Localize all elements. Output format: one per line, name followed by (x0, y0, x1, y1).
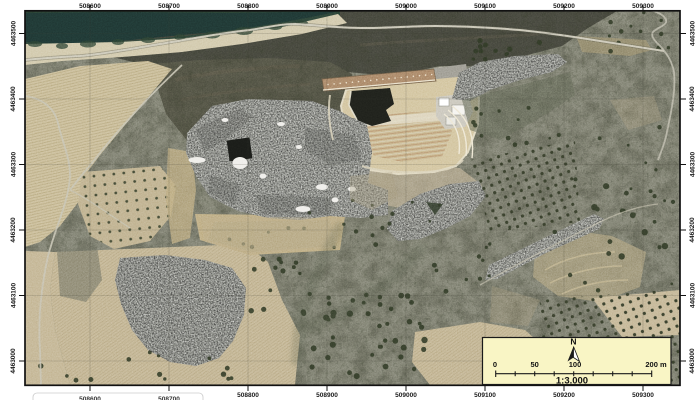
svg-text:508900: 508900 (316, 392, 338, 399)
svg-text:508700: 508700 (158, 3, 180, 10)
svg-text:4463400: 4463400 (689, 86, 696, 112)
svg-text:509000: 509000 (395, 392, 417, 399)
svg-text:50: 50 (531, 360, 539, 369)
svg-text:4463400: 4463400 (10, 86, 17, 112)
svg-text:508700: 508700 (158, 396, 180, 400)
svg-text:509100: 509100 (474, 392, 496, 399)
svg-text:200 m: 200 m (645, 360, 667, 369)
svg-text:509000: 509000 (395, 3, 417, 10)
svg-text:4463200: 4463200 (10, 217, 17, 243)
svg-text:4463500: 4463500 (11, 20, 18, 46)
svg-text:4463000: 4463000 (10, 348, 17, 374)
svg-text:4463300: 4463300 (690, 151, 697, 177)
svg-text:509100: 509100 (474, 3, 496, 10)
svg-text:508800: 508800 (237, 392, 259, 399)
svg-text:508600: 508600 (79, 3, 101, 10)
svg-text:509200: 509200 (553, 3, 575, 10)
svg-text:1:3.000: 1:3.000 (556, 376, 588, 387)
svg-text:509300: 509300 (632, 392, 654, 399)
svg-text:4463300: 4463300 (11, 151, 18, 177)
svg-text:4463100: 4463100 (690, 282, 697, 308)
svg-text:4463500: 4463500 (690, 20, 697, 46)
svg-text:4463000: 4463000 (689, 348, 696, 374)
svg-text:509200: 509200 (553, 392, 575, 399)
svg-text:4463200: 4463200 (689, 217, 696, 243)
svg-text:508600: 508600 (79, 396, 101, 400)
svg-text:N: N (570, 337, 576, 347)
svg-text:508900: 508900 (316, 3, 338, 10)
svg-text:100: 100 (569, 360, 582, 369)
svg-text:0: 0 (493, 360, 497, 369)
svg-text:509300: 509300 (632, 3, 654, 10)
svg-text:508800: 508800 (237, 3, 259, 10)
svg-text:4463100: 4463100 (11, 282, 18, 308)
